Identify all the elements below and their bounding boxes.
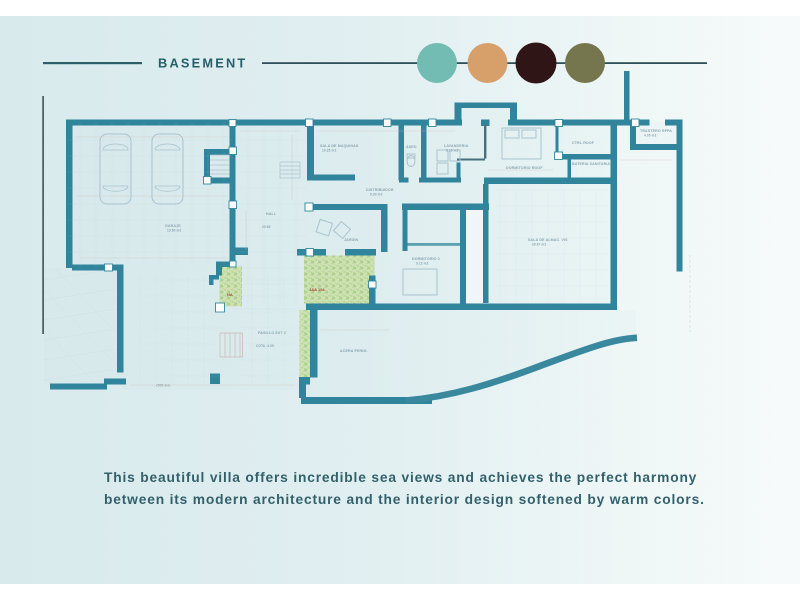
- svg-text:BATERIA SANITARIA: BATERIA SANITARIA: [572, 162, 610, 166]
- svg-text:GARAJE: GARAJE: [165, 224, 181, 228]
- svg-text:8.30 m2: 8.30 m2: [370, 193, 383, 197]
- svg-text:HALL: HALL: [266, 212, 277, 216]
- svg-text:28.67 m2: 28.67 m2: [532, 243, 546, 247]
- svg-text:between its modern architectur: between its modern architecture and the …: [104, 492, 705, 507]
- svg-text:10.25 m2: 10.25 m2: [322, 149, 336, 153]
- svg-text:CTRL ROOF: CTRL ROOF: [572, 141, 595, 145]
- svg-text:This beautiful villa offers in: This beautiful villa offers incredible s…: [104, 470, 697, 485]
- svg-text:DISTRIBUIDOR: DISTRIBUIDOR: [366, 188, 394, 192]
- svg-text:NA: NA: [227, 292, 233, 297]
- svg-text:JARDIN: JARDIN: [344, 238, 358, 242]
- svg-text:PASILLO EXT 2: PASILLO EXT 2: [258, 331, 286, 335]
- svg-text:DORMITORIO ROOF: DORMITORIO ROOF: [506, 166, 543, 170]
- svg-text:SALA DE ALMAC. VIS: SALA DE ALMAC. VIS: [528, 238, 568, 242]
- svg-text:LAVANDERIA: LAVANDERIA: [444, 144, 469, 148]
- svg-text:BASEMENT: BASEMENT: [158, 56, 247, 71]
- svg-text:19.60 m2: 19.60 m2: [167, 229, 181, 233]
- svg-text:COTA -3.05: COTA -3.05: [256, 344, 274, 348]
- svg-text:JAA 104: JAA 104: [309, 287, 325, 292]
- svg-text:DORMITORIO 2: DORMITORIO 2: [412, 257, 440, 261]
- svg-text:ASEO: ASEO: [406, 145, 417, 149]
- svg-text:2500 mm: 2500 mm: [156, 384, 170, 388]
- svg-text:20.65: 20.65: [262, 225, 271, 229]
- svg-text:4.05 m2: 4.05 m2: [644, 134, 657, 138]
- svg-text:TRASTERO RFPA: TRASTERO RFPA: [640, 129, 672, 133]
- svg-text:9.12 m2: 9.12 m2: [416, 262, 429, 266]
- svg-text:SALA DE MAQUINAS: SALA DE MAQUINAS: [320, 144, 359, 148]
- svg-text:ACERA PERIM.: ACERA PERIM.: [340, 349, 368, 353]
- svg-text:6.16 m2: 6.16 m2: [446, 149, 459, 153]
